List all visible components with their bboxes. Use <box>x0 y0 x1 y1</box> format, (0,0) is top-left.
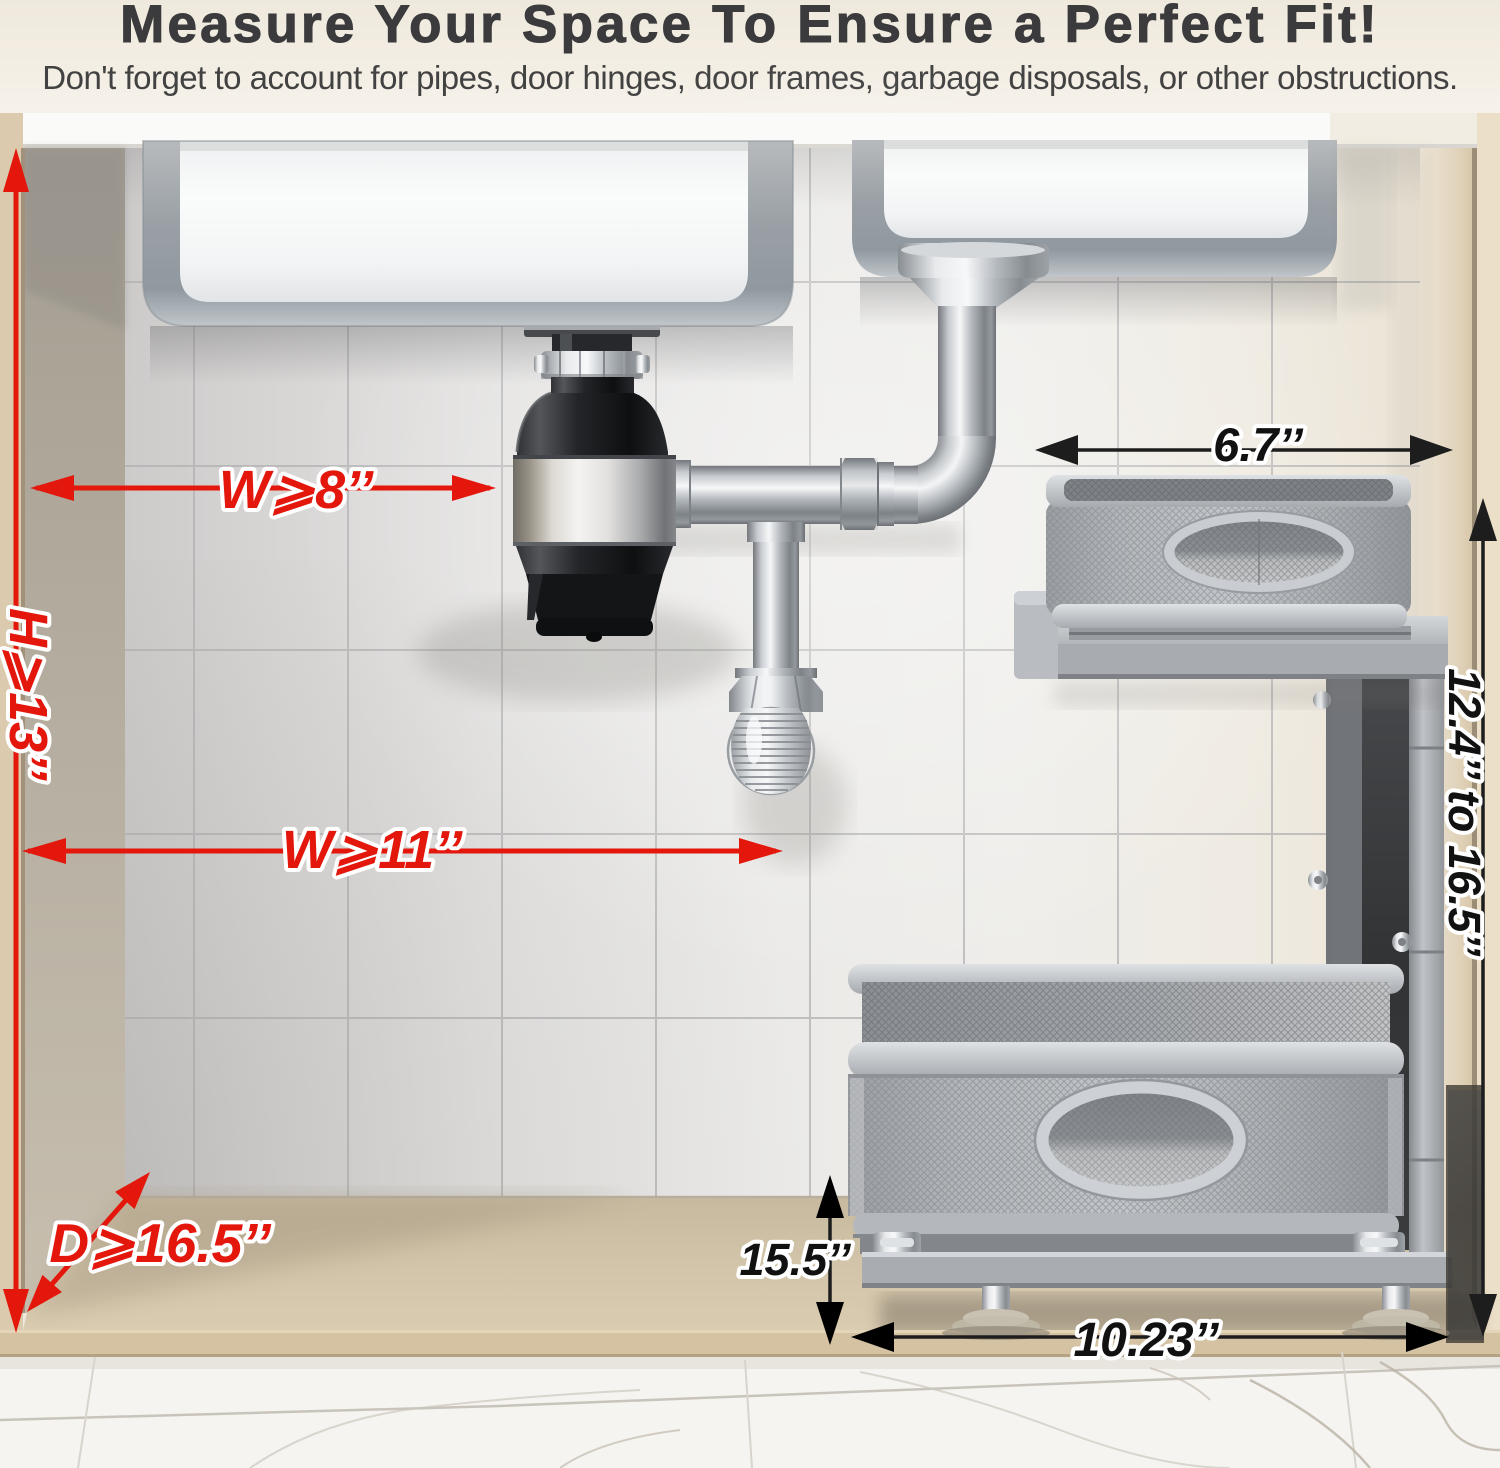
svg-text:W⩾11’’: W⩾11’’ <box>282 820 463 880</box>
svg-text:15.5’’: 15.5’’ <box>740 1234 852 1285</box>
svg-text:6.7’’: 6.7’’ <box>1213 418 1304 471</box>
svg-text:D⩾16.5’’: D⩾16.5’’ <box>49 1212 271 1274</box>
svg-text:H⩾13’’: H⩾13’’ <box>0 608 58 781</box>
svg-text:Measure Your Space To Ensure a: Measure Your Space To Ensure a Perfect F… <box>120 0 1380 54</box>
svg-text:W⩾8’’: W⩾8’’ <box>219 460 374 520</box>
svg-text:12.4’’ to 16.5’’: 12.4’’ to 16.5’’ <box>1439 668 1490 957</box>
svg-text:10.23’’: 10.23’’ <box>1073 1314 1219 1367</box>
